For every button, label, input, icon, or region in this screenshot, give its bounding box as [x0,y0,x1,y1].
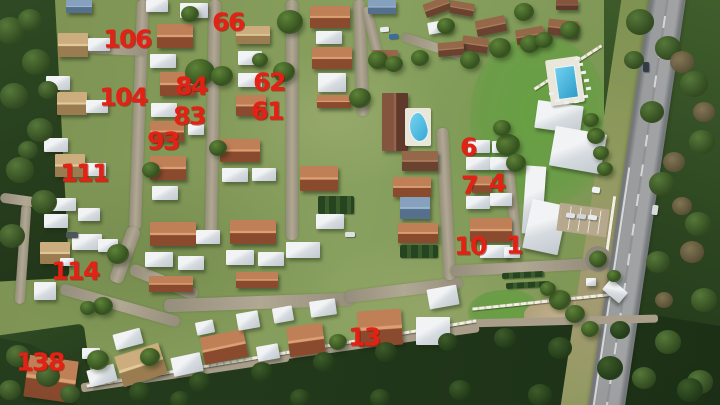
tree [535,32,553,48]
house-roof-white [316,31,342,44]
tree [18,9,42,31]
tree [22,49,50,74]
house-roof-white [146,0,168,12]
tree [506,154,526,172]
tree [0,380,21,400]
house-roof-terracotta [236,272,278,288]
parked-car [643,62,649,72]
tree [211,66,233,86]
roof-blue-gray [368,0,396,14]
scrub-patch [672,197,692,215]
tree [565,305,585,323]
hedge-garden [318,196,354,214]
house-roof-terracotta [150,222,196,246]
house-roof-white [78,208,100,221]
parked-car [588,214,598,220]
house-roof-white [196,230,220,244]
estate-street [286,0,298,240]
tree [685,212,711,235]
parked-car [577,213,587,219]
tree [548,337,572,359]
tree [329,334,347,350]
tree [411,50,429,66]
house-roof-white [318,73,346,92]
tree [140,348,160,366]
tree [496,134,520,156]
house-roof-white [145,252,173,267]
tree [60,385,80,403]
tree [597,356,623,379]
unit-number-label-6: 6 [460,135,476,160]
tree [313,352,335,372]
tree [632,367,656,389]
house-roof-terracotta [230,220,276,244]
tree [528,384,552,405]
house-roof-tan [57,92,87,115]
tree [640,101,664,123]
tree [277,10,303,33]
tree [349,88,371,108]
tree [142,162,160,178]
house-roof-white [152,186,178,200]
tree [655,330,681,353]
tree [514,3,534,21]
house-roof-terracotta [300,166,338,191]
house-roof-terracotta [312,47,352,69]
unit-number-label-106: 106 [103,27,151,52]
house-roof-white [226,250,254,265]
tree [87,350,109,370]
house-roof-terracotta [398,223,438,243]
house-roof-terracotta [317,95,351,108]
unit-number-label-4: 4 [489,171,505,196]
scrub-patch [693,102,715,122]
house-roof-white [286,242,320,258]
tree [624,51,644,69]
house-roof-white [178,256,204,270]
unit-number-label-111: 111 [60,161,108,186]
house-roof-white [44,214,68,228]
house-roof-terracotta [393,177,431,197]
tree [370,389,390,405]
tree [583,113,599,127]
tree [587,128,605,144]
house-roof-white [44,138,68,152]
tree [646,251,670,273]
scrub-patch [670,51,694,73]
unit-number-label-83: 83 [173,104,205,129]
unit-number-label-7: 7 [461,173,477,198]
tree [38,81,58,99]
scrub-patch [655,292,673,308]
tree [181,6,199,22]
cottage-roof-brown [402,151,438,171]
roof-blue-gray [400,197,430,219]
tree [0,83,28,108]
tree [691,288,717,311]
parked-car [389,34,398,40]
house-roof-terracotta [157,24,193,48]
house-roof-terracotta [149,276,193,292]
tree [560,21,580,39]
house-roof-white [316,214,344,229]
tree [170,391,190,405]
tree [93,297,113,315]
unit-number-label-114: 114 [51,259,99,284]
unit-number-label-62: 62 [253,70,285,95]
unit-number-label-104: 104 [99,85,147,110]
tree [252,53,268,67]
parked-car [566,212,576,218]
tree [540,282,556,296]
unit-number-label-10: 10 [454,234,486,259]
scrub-patch [663,152,685,172]
tree [27,118,53,141]
tree [689,130,715,153]
parked-car [66,232,78,238]
tree [494,328,516,348]
unit-number-label-66: 66 [212,10,244,35]
scrub-patch [680,241,704,263]
tree [581,321,599,337]
tree [0,224,25,247]
roof-blue-gray [66,0,92,13]
tree [610,321,630,339]
tree [589,251,607,267]
tree [6,157,34,182]
parked-car [345,232,355,237]
house-roof-white [252,168,276,181]
swimming-pool [554,65,579,101]
unit-number-label-93: 93 [147,129,179,154]
tree [649,172,675,195]
unit-number-label-61: 61 [251,99,283,124]
tree [18,141,38,159]
tree [680,71,708,96]
house-roof-tan [58,33,88,57]
unit-number-label-84: 84 [175,74,207,99]
hedge-garden [400,245,438,258]
unit-number-label-1: 1 [506,233,522,258]
house-roof-white [222,168,248,182]
tree [189,372,211,392]
tree [677,378,703,401]
building-roof-maroon [556,0,578,10]
tree [31,190,57,213]
unit-number-label-138: 138 [16,350,64,375]
aerial-photo: 66106846210483619311167410111413138 [0,0,720,405]
house-roof-white [258,252,284,266]
tree [290,389,310,405]
tree [80,301,96,315]
house-roof-white [150,54,176,68]
tree [251,362,273,382]
tree [437,18,455,34]
tree [626,9,654,34]
tree [209,140,227,156]
tree [493,120,511,136]
tree [107,244,129,264]
tree [489,38,511,58]
parked-car [592,186,601,193]
house-roof-white [586,278,596,286]
house-roof-terracotta [310,6,350,28]
parked-car [380,27,389,33]
tree [597,162,613,176]
tree [129,382,151,402]
tree [385,56,403,72]
tree [593,146,609,160]
unit-number-label-13: 13 [348,325,380,350]
tree [449,380,471,400]
tree [438,333,458,351]
tree [460,51,480,69]
